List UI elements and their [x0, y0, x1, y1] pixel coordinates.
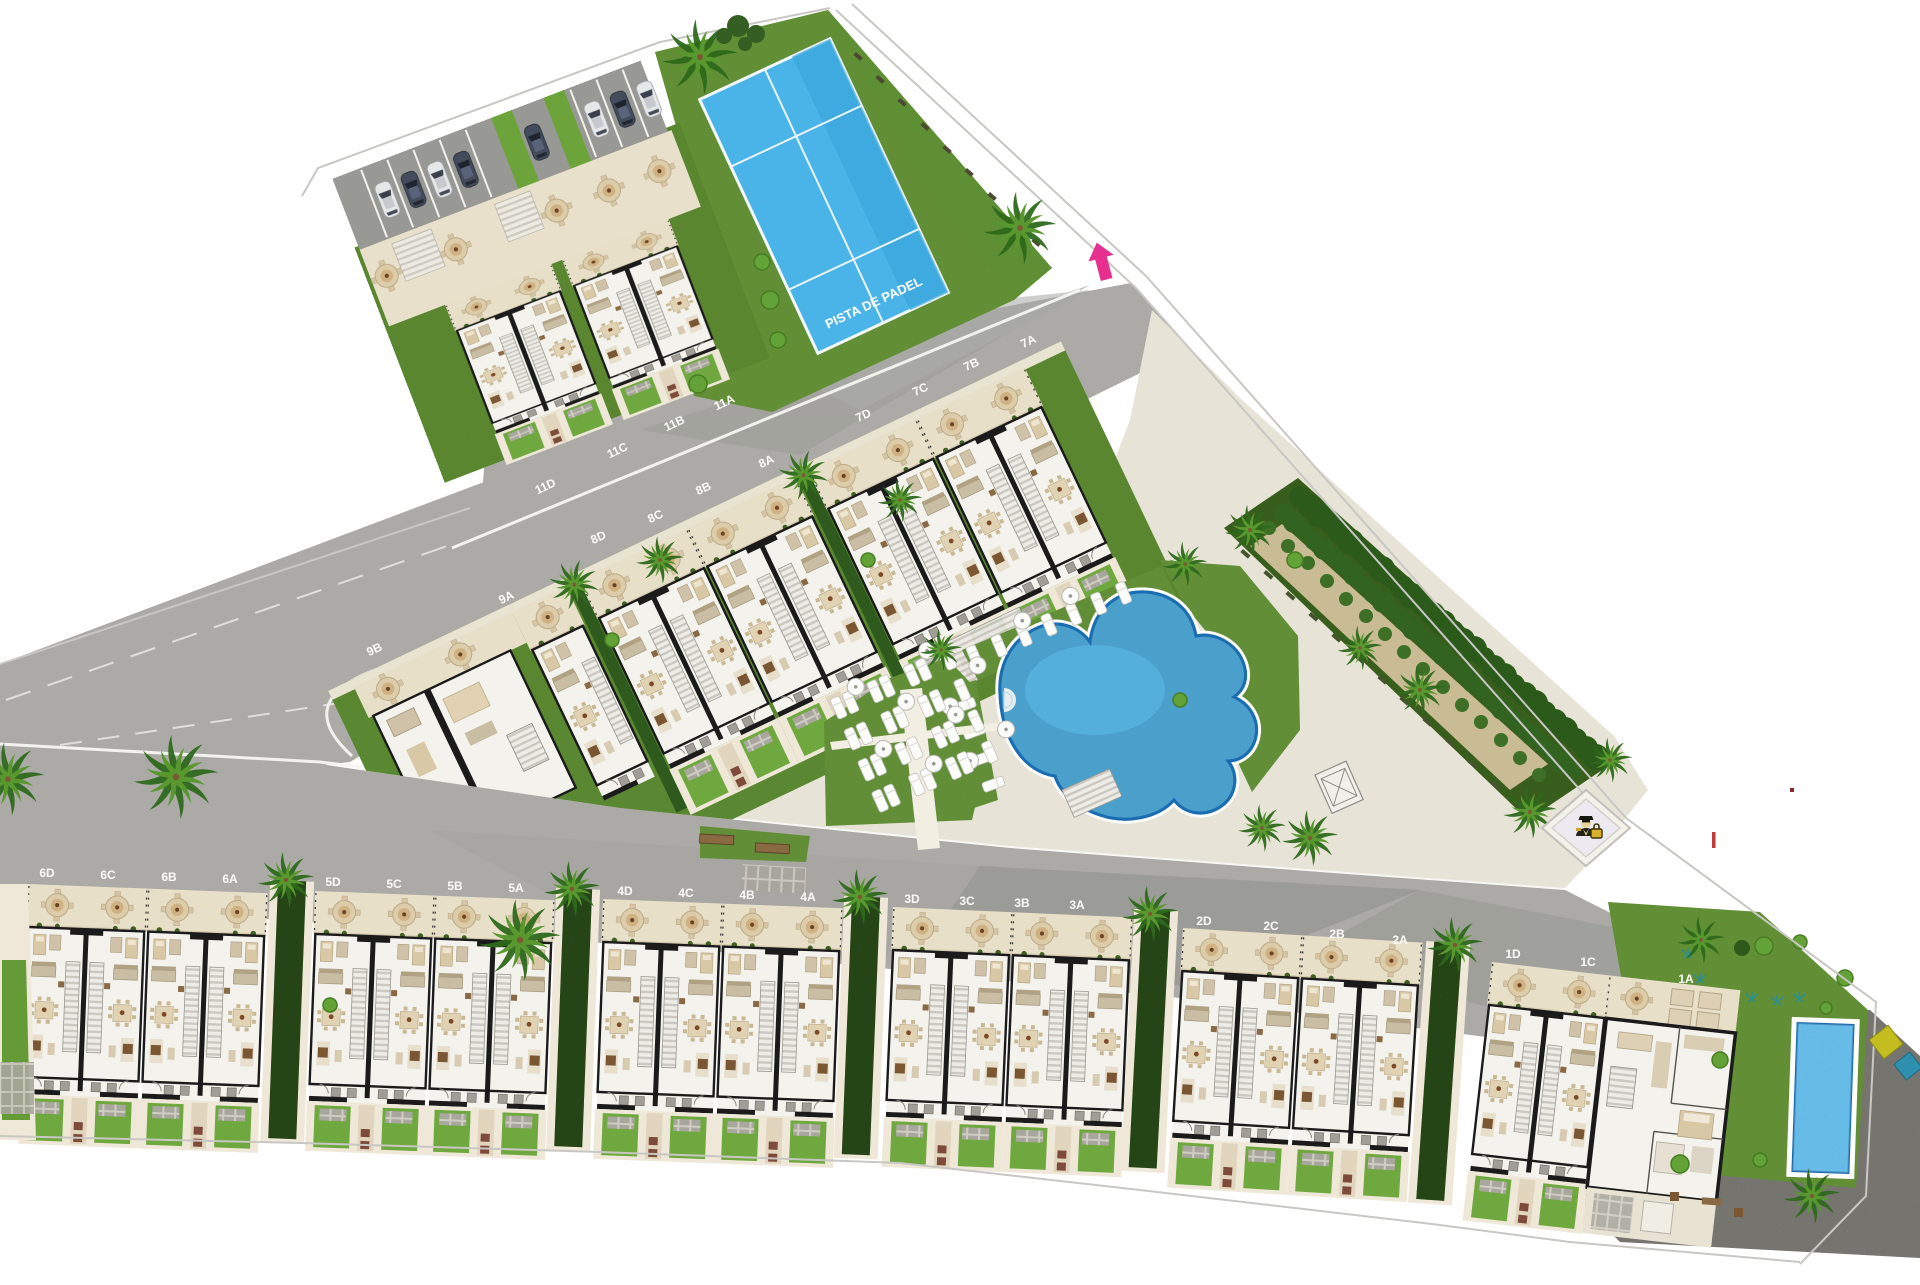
svg-text:6A: 6A	[222, 872, 238, 886]
svg-text:2B: 2B	[1329, 927, 1345, 941]
svg-text:2D: 2D	[1196, 914, 1212, 928]
svg-text:3B: 3B	[1014, 896, 1030, 910]
svg-text:3A: 3A	[1069, 898, 1085, 912]
svg-text:3C: 3C	[959, 894, 975, 908]
svg-text:5B: 5B	[447, 879, 463, 893]
svg-text:6C: 6C	[100, 868, 116, 882]
svg-text:1A: 1A	[1678, 972, 1694, 986]
svg-text:6B: 6B	[161, 870, 177, 884]
svg-text:6D: 6D	[39, 866, 55, 880]
svg-text:4A: 4A	[800, 890, 816, 904]
svg-text:1D: 1D	[1505, 947, 1521, 961]
svg-text:4C: 4C	[678, 886, 694, 900]
svg-text:1C: 1C	[1580, 955, 1596, 969]
svg-text:4B: 4B	[739, 888, 755, 902]
svg-text:2A: 2A	[1392, 933, 1408, 947]
svg-text:3D: 3D	[904, 892, 920, 906]
svg-text:2C: 2C	[1263, 919, 1279, 933]
svg-text:5A: 5A	[508, 881, 524, 895]
svg-text:5C: 5C	[386, 877, 402, 891]
svg-text:4D: 4D	[617, 884, 633, 898]
svg-text:5D: 5D	[325, 875, 341, 889]
